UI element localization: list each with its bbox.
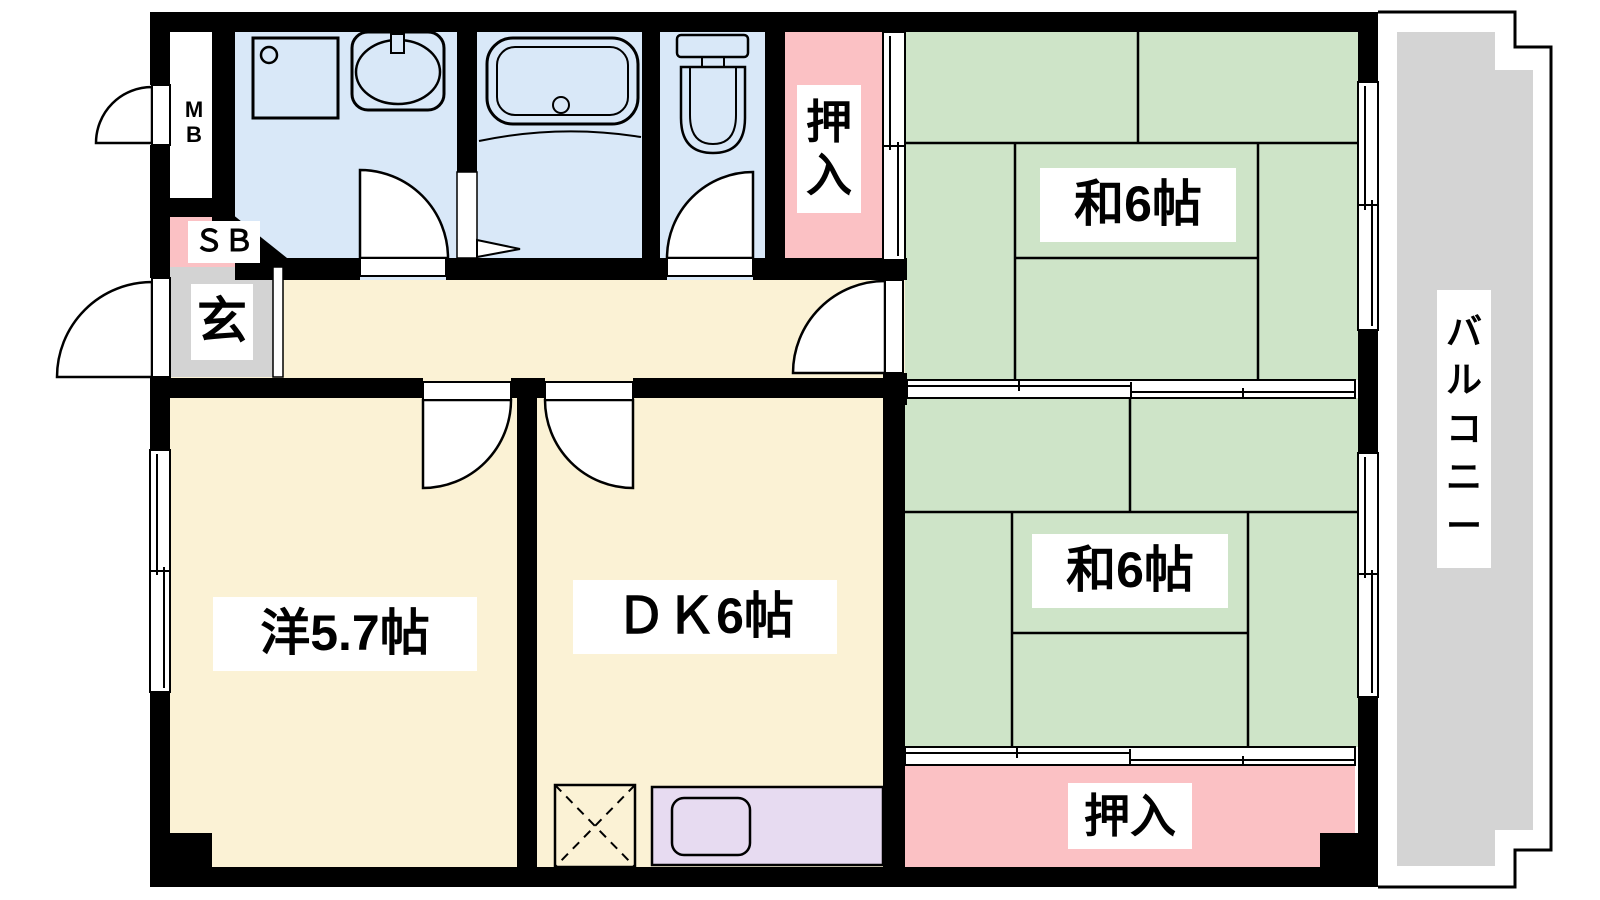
room-bathroom (477, 32, 642, 280)
label-shoebox: ＳＢ (188, 221, 260, 263)
label-closet-bottom: 押入 (1068, 783, 1192, 849)
floorplan: 和6帖 和6帖 ＤＫ6帖 洋5.7帖 押 入 押入 玄 ＳＢ M B バ ル コ… (0, 0, 1600, 900)
sliding-door-closet-bottom (905, 747, 1355, 765)
window-balcony-top (1358, 82, 1378, 330)
entrance-door (57, 278, 170, 377)
floors (170, 32, 1358, 867)
label-closet-top: 押 入 (797, 85, 861, 213)
label-meter-box: M B (174, 93, 214, 151)
window-balcony-bottom (1358, 453, 1378, 697)
meter-box-door (96, 85, 170, 145)
window-western-room (150, 450, 170, 692)
label-balcony: バ ル コ ニ ー (1437, 290, 1491, 568)
label-washitsu-top: 和6帖 (1040, 168, 1236, 242)
sliding-door-tatami-divider (907, 380, 1355, 398)
label-dk: ＤＫ6帖 (573, 580, 837, 654)
genkan-step (273, 267, 283, 377)
label-genkan: 玄 (191, 284, 253, 360)
label-western-room: 洋5.7帖 (213, 597, 477, 671)
label-washitsu-bottom: 和6帖 (1032, 534, 1228, 608)
kitchen-counter (652, 787, 883, 865)
sliding-door-closet-top (883, 32, 905, 260)
